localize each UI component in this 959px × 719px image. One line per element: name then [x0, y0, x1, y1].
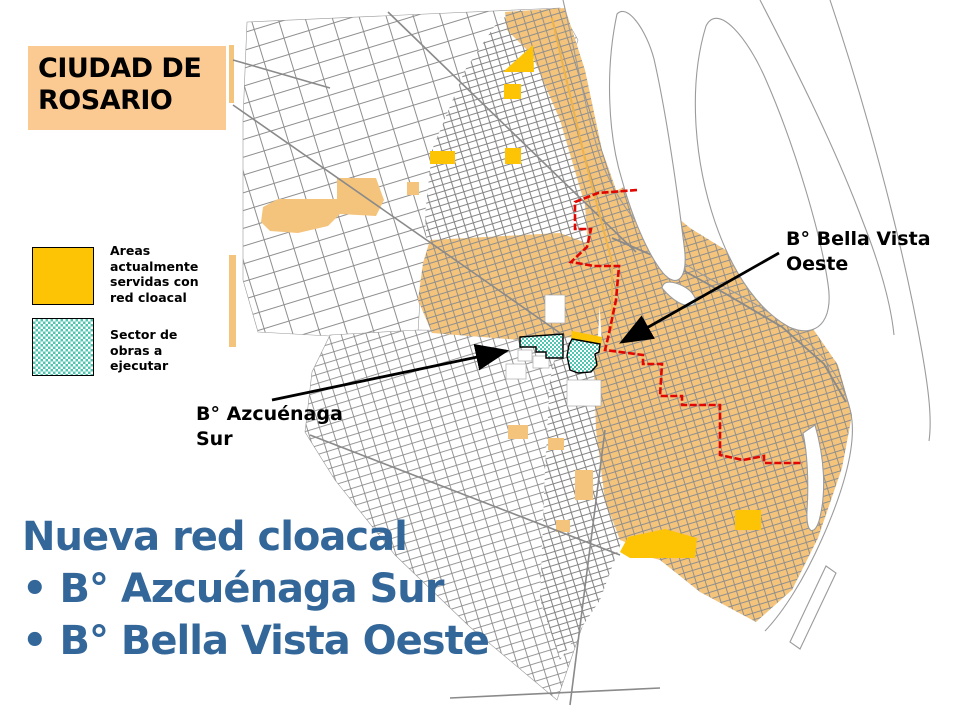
map-label-bella-vista-oeste: B° Bella Vista Oeste — [786, 227, 942, 277]
map-sector-bella-vista-oeste — [567, 339, 600, 373]
legend-swatch-served — [32, 247, 94, 305]
legend-swatch-works — [32, 318, 94, 376]
map-label-azcuenaga-sur: B° Azcuénaga Sur — [196, 402, 362, 452]
heading-bullet-bella-vista-oeste: • B° Bella Vista Oeste — [22, 618, 489, 664]
legend-label-served: Areas actualmente servidas con red cloac… — [110, 243, 220, 305]
heading-bullet-azcuenaga-sur: • B° Azcuénaga Sur — [22, 566, 444, 612]
page-title: CIUDAD DE ROSARIO — [38, 53, 201, 116]
legend-label-works: Sector de obras a ejecutar — [110, 327, 220, 374]
slide: CIUDAD DE ROSARIO Areas actualmente serv… — [0, 0, 959, 719]
title-box: CIUDAD DE ROSARIO — [28, 46, 226, 130]
heading-nueva-red-cloacal: Nueva red cloacal — [22, 514, 407, 560]
